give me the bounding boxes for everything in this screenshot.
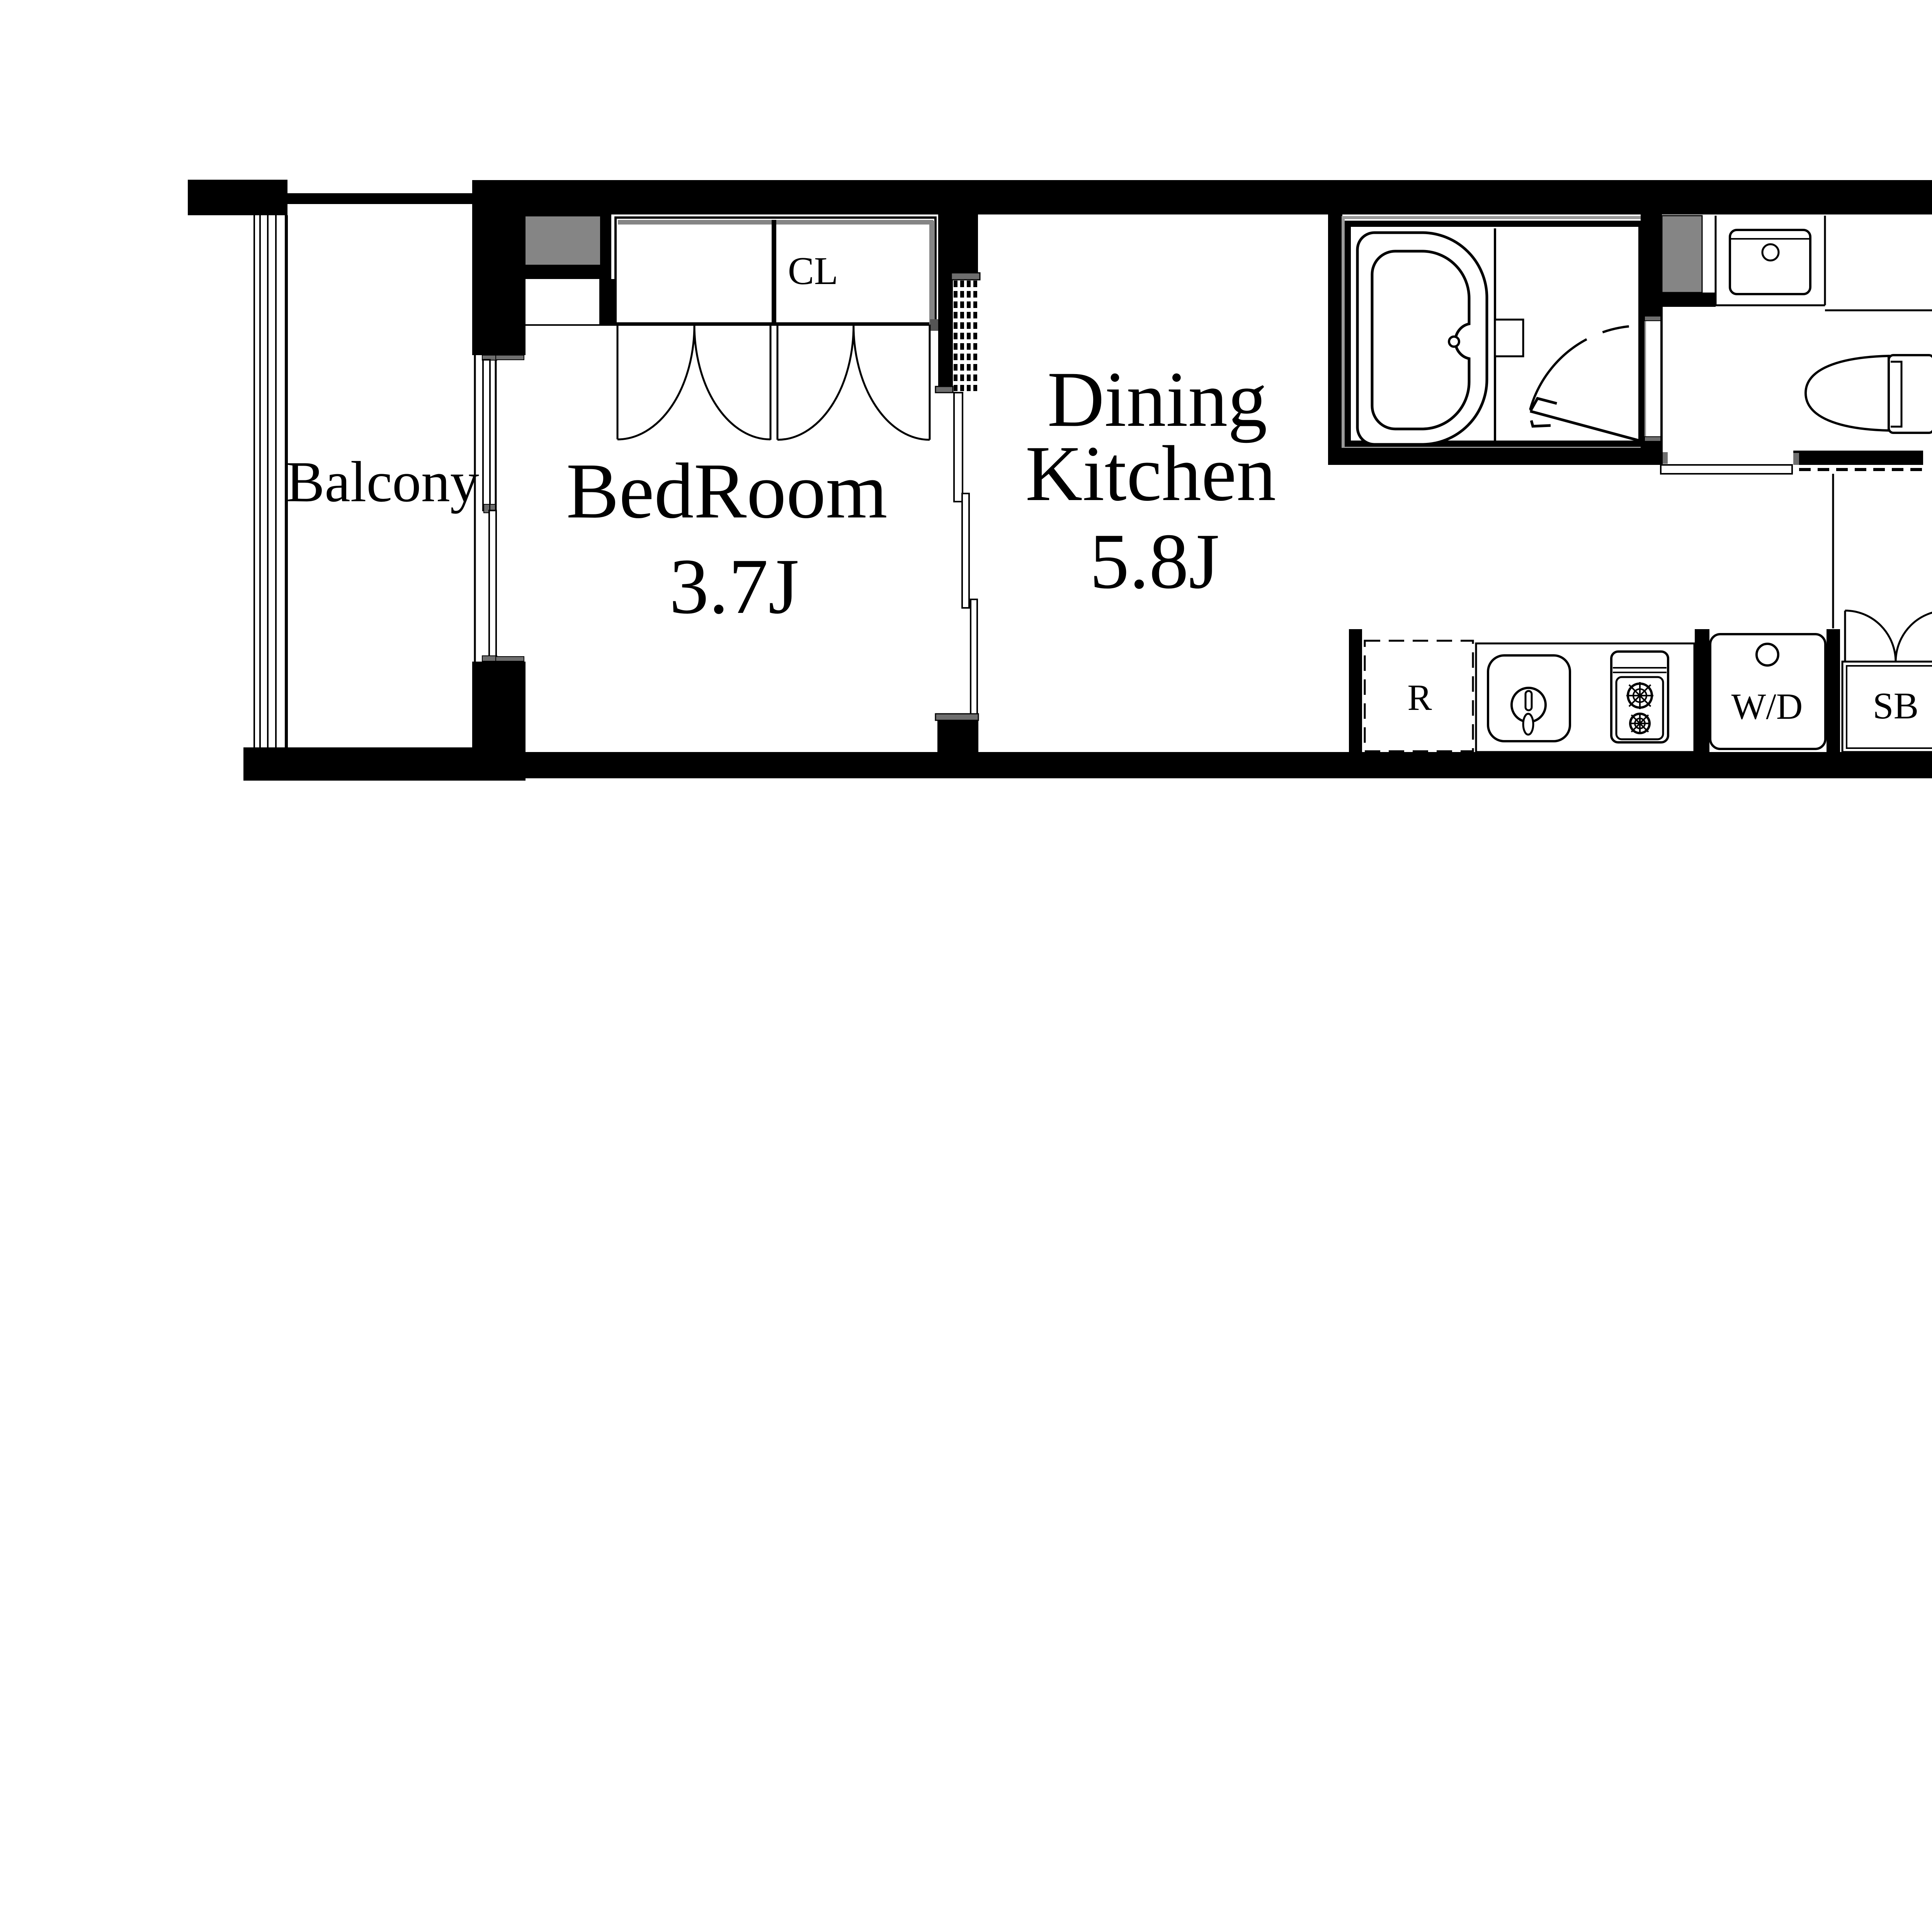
svg-text:CL: CL: [788, 249, 838, 293]
svg-text:BedRoom: BedRoom: [566, 447, 887, 535]
svg-text:Kitchen: Kitchen: [1026, 430, 1276, 517]
svg-text:Balcony: Balcony: [286, 450, 479, 514]
svg-text:3.7J: 3.7J: [669, 543, 799, 630]
svg-text:5.8J: 5.8J: [1090, 517, 1219, 605]
svg-text:W/D: W/D: [1731, 686, 1803, 727]
svg-text:SB: SB: [1873, 685, 1919, 727]
svg-text:R: R: [1407, 677, 1432, 718]
